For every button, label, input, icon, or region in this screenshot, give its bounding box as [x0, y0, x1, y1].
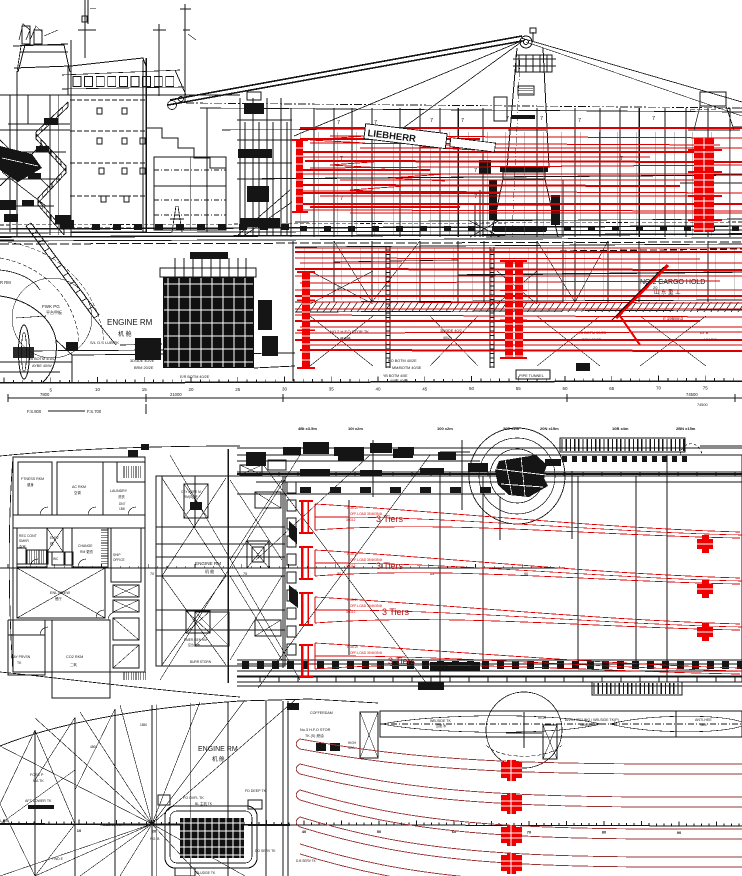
svg-text:FD DEEP TK: FD DEEP TK — [245, 789, 267, 793]
svg-text:7: 7 — [474, 194, 477, 200]
svg-text:100 x2m: 100 x2m — [437, 426, 453, 431]
svg-text:80: 80 — [337, 572, 341, 576]
svg-text:WB-SIDE TK: WB-SIDE TK — [430, 719, 452, 723]
svg-text:7: 7 — [540, 116, 543, 122]
svg-text:7: 7 — [652, 116, 655, 122]
svg-text:F.O. B: F.O. B — [150, 837, 160, 841]
svg-text:NO BOTM 40/2E: NO BOTM 40/2E — [388, 359, 417, 363]
svg-text:S/L O.S LUB.TK: S/L O.S LUB.TK — [90, 340, 119, 345]
svg-text:OFF-LOAD 39.6t/39.6t: OFF-LOAD 39.6t/39.6t — [350, 604, 382, 608]
svg-text:ENGINE RM: ENGINE RM — [195, 561, 221, 566]
svg-text:45: 45 — [422, 386, 428, 391]
svg-text:A 35.2t: A 35.2t — [347, 645, 358, 649]
svg-text:SHIP: SHIP — [113, 553, 120, 557]
svg-text:空调: 空调 — [74, 490, 81, 495]
svg-text:ENL CREW: ENL CREW — [50, 591, 70, 595]
svg-text:MA TK: MA TK — [33, 779, 44, 783]
svg-text:20: 20 — [188, 387, 194, 392]
svg-text:3 Tiers: 3 Tiers — [376, 514, 404, 524]
svg-text:10B x4m: 10B x4m — [612, 426, 629, 431]
svg-text:60: 60 — [562, 386, 568, 391]
svg-text:AFT LOWER TK: AFT LOWER TK — [25, 799, 52, 803]
svg-text:15: 15 — [142, 387, 148, 392]
svg-text:ENGINE RM: ENGINE RM — [198, 746, 238, 753]
svg-text:30: 30 — [282, 387, 288, 392]
svg-text:60: 60 — [452, 829, 457, 834]
svg-text:COFFERDAM: COFFERDAM — [310, 711, 333, 715]
svg-text:AYBE 40/W: AYBE 40/W — [32, 364, 52, 368]
svg-text:No.3 H.F.O STOR: No.3 H.F.O STOR — [300, 728, 331, 732]
svg-text:LAUNDRY: LAUNDRY — [110, 489, 128, 493]
svg-text:BRM 20/2E: BRM 20/2E — [134, 366, 154, 370]
svg-text:7: 7 — [461, 118, 464, 124]
svg-text:ANTI-HEE: ANTI-HEE — [695, 718, 712, 722]
svg-text:CEY EQPE M: CEY EQPE M — [181, 490, 201, 494]
svg-text:RM 更衣: RM 更衣 — [80, 549, 94, 554]
svg-text:4B/4B5B TK: 4B/4B5B TK — [580, 723, 598, 727]
svg-text:DAY PRVSN: DAY PRVSN — [11, 655, 31, 659]
svg-text:餐厅: 餐厅 — [55, 596, 62, 601]
svg-text:HIGH: HIGH — [538, 716, 547, 720]
svg-text:SLUDGE TK: SLUDGE TK — [196, 871, 216, 875]
svg-text:7: 7 — [506, 116, 509, 122]
svg-text:FWK PG: FWK PG — [42, 304, 60, 309]
svg-text:80: 80 — [602, 830, 607, 835]
svg-text:40: 40 — [375, 386, 381, 391]
svg-text:E/R BOTM 40/2E: E/R BOTM 40/2E — [180, 375, 210, 379]
svg-text:20: 20 — [152, 828, 157, 833]
svg-text:D.B SERV TK: D.B SERV TK — [296, 859, 317, 863]
svg-text:洗衣: 洗衣 — [118, 494, 125, 499]
svg-text:25: 25 — [235, 387, 241, 392]
svg-text:3 Tiers: 3 Tiers — [388, 656, 416, 666]
svg-text:BURR STORN: BURR STORN — [190, 660, 212, 664]
svg-text:YB BOTM 4/0E: YB BOTM 4/0E — [383, 374, 408, 378]
svg-text:山 东 重 工: 山 东 重 工 — [654, 288, 681, 296]
svg-text:EMER.GEN RM: EMER.GEN RM — [184, 638, 207, 642]
svg-text:70: 70 — [527, 829, 532, 834]
svg-text:55: 55 — [516, 386, 522, 391]
svg-text:机 舱: 机 舱 — [212, 755, 225, 763]
svg-text:PIPE TUNNEL: PIPE TUNNEL — [519, 374, 544, 378]
svg-text:ENGINE RM: ENGINE RM — [107, 318, 153, 327]
svg-text:3xG12: 3xG12 — [346, 518, 356, 522]
svg-text:A 35.2t: A 35.2t — [347, 552, 358, 556]
svg-text:20N x15m: 20N x15m — [540, 426, 559, 431]
svg-text:50: 50 — [377, 829, 382, 834]
svg-text:FTNESS RKM: FTNESS RKM — [21, 477, 44, 481]
svg-text:7800: 7800 — [40, 392, 50, 397]
svg-text:7: 7 — [474, 168, 477, 174]
svg-text:F.S.700: F.S.700 — [87, 409, 102, 414]
svg-text:BL 主机 TK: BL 主机 TK — [195, 801, 213, 806]
svg-text:50: 50 — [469, 386, 475, 391]
svg-text:FO OVFL TK: FO OVFL TK — [183, 796, 204, 800]
svg-text:3xG12: 3xG12 — [346, 610, 356, 614]
svg-text:边舱 水: 边舱 水 — [436, 723, 447, 728]
svg-text:7: 7 — [340, 196, 343, 202]
svg-text:ANTI-HEELING / WB-SIDE TK(P): ANTI-HEELING / WB-SIDE TK(P) — [565, 718, 619, 722]
svg-text:健身: 健身 — [27, 482, 34, 487]
svg-text:70: 70 — [150, 572, 154, 576]
svg-text:CHANGE: CHANGE — [78, 544, 93, 548]
svg-text:TK: TK — [17, 661, 22, 665]
svg-text:3xG12: 3xG12 — [346, 564, 356, 568]
svg-text:21000: 21000 — [170, 392, 182, 397]
svg-text:1850: 1850 — [140, 723, 147, 727]
svg-text:35: 35 — [329, 387, 335, 392]
svg-text:2BN x15m: 2BN x15m — [676, 426, 696, 431]
svg-text:CO2 RKM: CO2 RKM — [66, 655, 83, 659]
svg-text:7: 7 — [578, 118, 581, 124]
svg-text:10: 10 — [77, 828, 82, 833]
svg-text:MM/BOTM 40/3E: MM/BOTM 40/3E — [392, 366, 422, 370]
svg-text:90: 90 — [677, 830, 682, 835]
svg-text:VB BOTM 30/2B: VB BOTM 30/2B — [578, 331, 607, 335]
svg-text:74500: 74500 — [697, 403, 708, 407]
svg-text:DN7: DN7 — [119, 502, 126, 506]
svg-text:4Bt x3.5m: 4Bt x3.5m — [298, 426, 317, 431]
svg-text:SMKR: SMKR — [19, 539, 29, 543]
svg-text:OFF-LOAD 39.6t/39.6t: OFF-LOAD 39.6t/39.6t — [350, 651, 382, 655]
svg-text:RM(S) 配: RM(S) 配 — [184, 494, 198, 499]
svg-text:FWD E: FWD E — [52, 857, 64, 861]
svg-text:1B8: 1B8 — [119, 507, 125, 511]
svg-text:10: 10 — [95, 387, 101, 392]
svg-text:20: 20 — [337, 285, 342, 290]
svg-text:WC: WC — [53, 557, 59, 561]
svg-text:机 舱: 机 舱 — [205, 568, 214, 574]
svg-text:F.S.800: F.S.800 — [27, 409, 42, 414]
svg-text:70: 70 — [656, 386, 662, 391]
svg-text:A 35.2t: A 35.2t — [347, 598, 358, 602]
svg-text:75: 75 — [703, 386, 709, 391]
svg-text:3D/3DE 40/2E: 3D/3DE 40/2E — [130, 359, 155, 363]
svg-text:R RM: R RM — [0, 280, 11, 285]
svg-text:OFFICE: OFFICE — [113, 558, 125, 562]
svg-text:3 Tiers: 3 Tiers — [382, 607, 410, 617]
svg-text:4B/4: 4B/4 — [700, 723, 707, 727]
svg-text:REC CONT: REC CONT — [19, 534, 37, 538]
svg-text:40: 40 — [302, 829, 307, 834]
svg-text:平台甲板: 平台甲板 — [46, 309, 62, 315]
svg-text:TK (S) 燃油: TK (S) 燃油 — [305, 733, 324, 738]
svg-text:二氧: 二氧 — [70, 662, 77, 667]
svg-text:7: 7 — [337, 120, 340, 126]
svg-text:VB BOTM 4/1B: VB BOTM 4/1B — [28, 357, 54, 361]
svg-text:7: 7 — [430, 118, 433, 124]
svg-text:A 35.2t: A 35.2t — [347, 506, 358, 510]
svg-text:DO SERV TK: DO SERV TK — [255, 849, 276, 853]
svg-text:74500: 74500 — [686, 392, 698, 397]
svg-text:机 舱: 机 舱 — [118, 330, 132, 338]
svg-text:AC RKM: AC RKM — [72, 485, 86, 489]
svg-text:4800: 4800 — [90, 745, 97, 749]
svg-text:3 Tiers: 3 Tiers — [376, 561, 404, 571]
svg-text:65: 65 — [609, 386, 615, 391]
svg-text:HIGH: HIGH — [348, 741, 357, 745]
svg-text:FORE P: FORE P — [30, 773, 44, 777]
svg-text:10t x2m: 10t x2m — [348, 426, 363, 431]
